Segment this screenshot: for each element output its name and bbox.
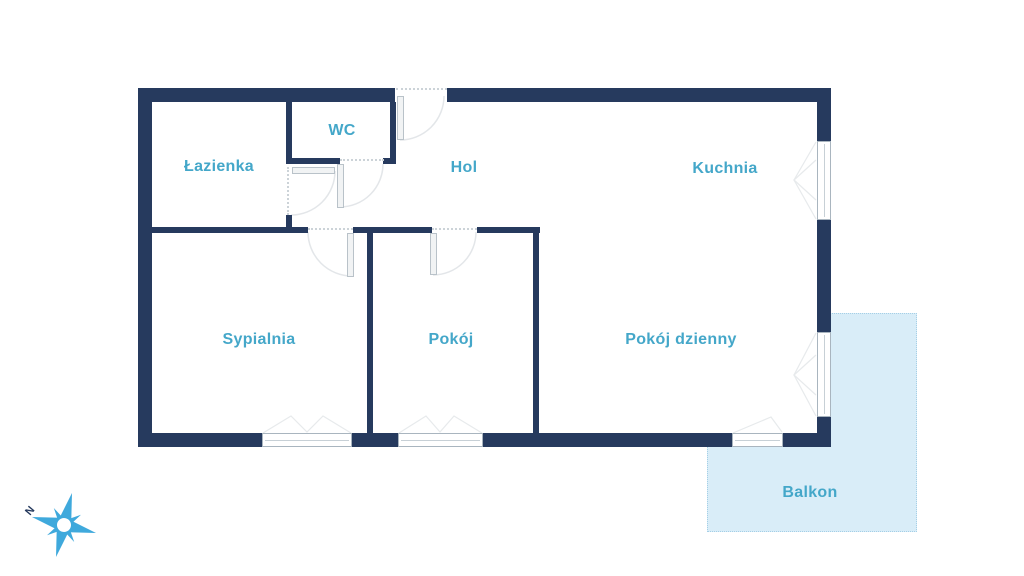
wall-bottom-1 — [138, 433, 262, 447]
wall-wc-bottom — [286, 158, 340, 164]
apartment-floor — [138, 88, 831, 447]
room-label-balkon: Balkon — [782, 484, 837, 502]
bedroom-door-leaf — [347, 233, 354, 277]
room-label-pokoj-dzienny: Pokój dzienny — [625, 331, 736, 349]
room-label-hol: Hol — [451, 159, 478, 177]
room-label-wc: WC — [328, 122, 355, 140]
kitchen-window-pane — [824, 144, 825, 217]
bedroom-window — [262, 433, 352, 447]
bathroom-opening-line — [287, 167, 289, 215]
wall-room-living — [533, 233, 539, 433]
entrance-door-leaf — [397, 96, 404, 140]
wc-door-leaf — [337, 164, 344, 208]
compass-north-label: N — [23, 504, 37, 518]
living-side-window — [817, 332, 831, 417]
room-label-pokoj: Pokój — [428, 331, 473, 349]
wall-hall-divider-3 — [477, 227, 540, 233]
bathroom-door-leaf — [292, 167, 335, 174]
living-bottom-window — [732, 433, 783, 447]
bedroom-window-pane — [265, 440, 349, 441]
room-label-kuchnia: Kuchnia — [692, 160, 757, 178]
floorplan-canvas: Łazienka WC Hol Kuchnia Sypialnia Pokój … — [0, 0, 1024, 576]
room-window — [398, 433, 483, 447]
wall-right-1 — [817, 88, 831, 141]
room-label-sypialnia: Sypialnia — [223, 331, 296, 349]
room-door-leaf — [430, 233, 437, 275]
wall-right-3 — [817, 417, 831, 447]
wc-opening-line — [340, 159, 384, 161]
wall-hall-divider-1 — [152, 227, 308, 233]
living-side-window-pane — [824, 335, 825, 414]
entrance-opening-line — [396, 88, 447, 90]
room-label-lazienka: Łazienka — [184, 158, 254, 176]
bedroom-opening-line — [308, 228, 353, 230]
wall-left — [138, 88, 152, 447]
wall-bedroom-room — [367, 233, 373, 433]
room-window-pane — [401, 440, 480, 441]
wall-top-left — [138, 88, 395, 102]
room-opening-line — [432, 228, 477, 230]
wall-right-2 — [817, 220, 831, 332]
wall-bottom-3 — [483, 433, 732, 447]
wall-bottom-2 — [352, 433, 398, 447]
wall-wc-right — [390, 102, 396, 164]
wall-hall-divider-2 — [353, 227, 432, 233]
compass-star-icon: N — [14, 484, 119, 569]
kitchen-window — [817, 141, 831, 220]
living-bottom-window-pane — [735, 440, 780, 441]
wall-top-right — [447, 88, 831, 102]
wall-bathroom-wc — [286, 102, 292, 160]
